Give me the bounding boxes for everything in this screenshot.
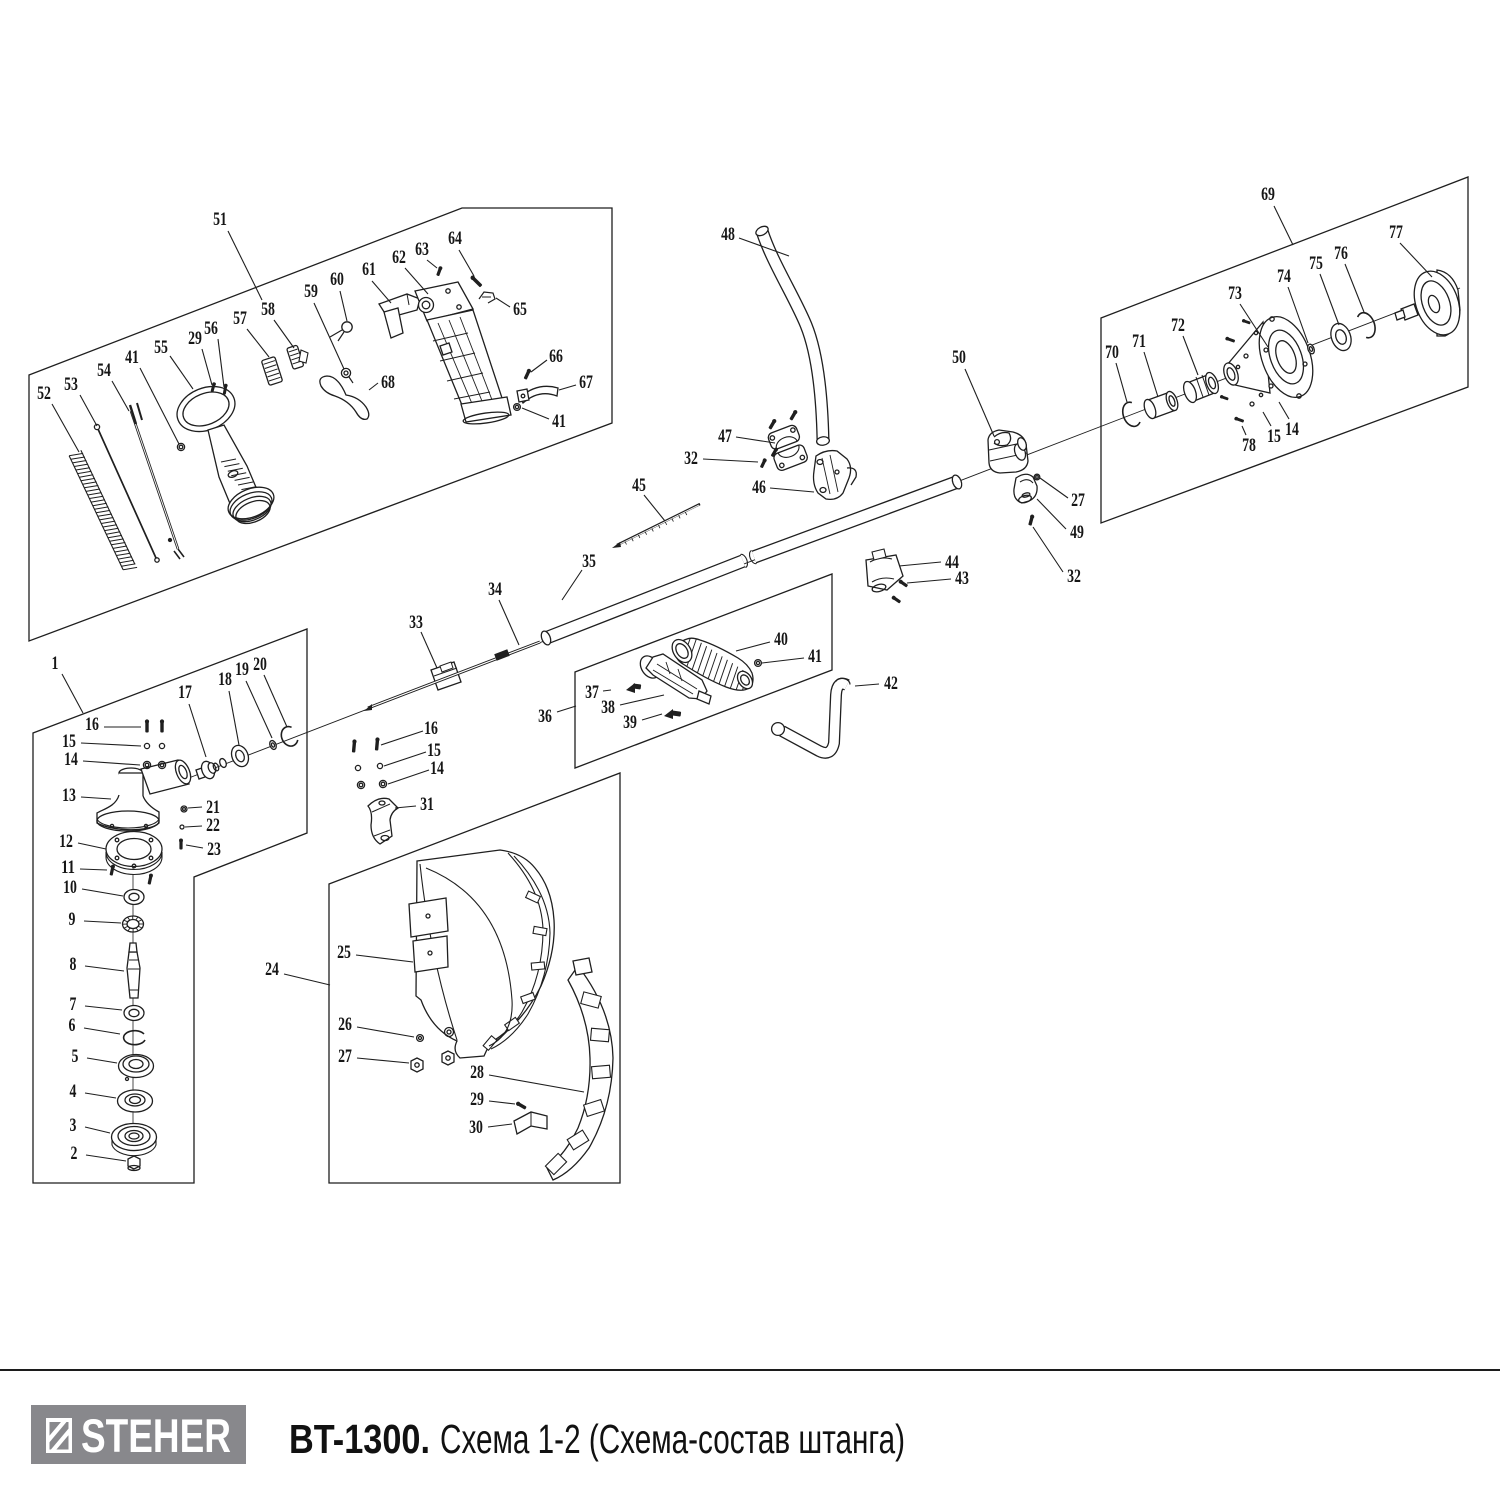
svg-text:70: 70 <box>1105 342 1119 363</box>
svg-text:10: 10 <box>63 877 77 898</box>
svg-text:35: 35 <box>582 551 596 572</box>
svg-text:65: 65 <box>513 299 527 320</box>
svg-text:72: 72 <box>1171 315 1185 336</box>
svg-text:8: 8 <box>70 954 77 975</box>
svg-text:71: 71 <box>1132 331 1146 352</box>
svg-text:49: 49 <box>1070 522 1084 543</box>
svg-text:63: 63 <box>415 239 429 260</box>
svg-text:54: 54 <box>97 360 111 381</box>
svg-text:50: 50 <box>952 347 966 368</box>
svg-text:22: 22 <box>206 815 220 836</box>
svg-text:73: 73 <box>1228 283 1242 304</box>
svg-text:30: 30 <box>469 1117 483 1138</box>
svg-text:5: 5 <box>72 1046 79 1067</box>
svg-text:59: 59 <box>304 281 318 302</box>
svg-text:61: 61 <box>362 259 376 280</box>
svg-text:74: 74 <box>1277 266 1291 287</box>
svg-text:29: 29 <box>470 1089 484 1110</box>
svg-text:64: 64 <box>448 228 462 249</box>
svg-text:52: 52 <box>37 383 51 404</box>
svg-text:41: 41 <box>808 646 822 667</box>
svg-text:33: 33 <box>409 612 423 633</box>
svg-text:43: 43 <box>955 568 969 589</box>
svg-text:77: 77 <box>1389 222 1403 243</box>
svg-text:38: 38 <box>601 697 615 718</box>
svg-text:STEHER: STEHER <box>81 1409 231 1462</box>
svg-text:17: 17 <box>178 682 192 703</box>
svg-text:26: 26 <box>338 1014 352 1035</box>
svg-text:47: 47 <box>718 426 732 447</box>
svg-text:3: 3 <box>70 1115 77 1136</box>
svg-text:4: 4 <box>70 1081 77 1102</box>
svg-text:28: 28 <box>470 1062 484 1083</box>
svg-text:34: 34 <box>488 579 502 600</box>
svg-text:16: 16 <box>85 714 99 735</box>
svg-text:27: 27 <box>1071 490 1085 511</box>
svg-text:12: 12 <box>59 831 73 852</box>
svg-text:53: 53 <box>64 374 78 395</box>
svg-text:14: 14 <box>64 749 78 770</box>
svg-text:14: 14 <box>430 758 444 779</box>
svg-text:40: 40 <box>774 629 788 650</box>
svg-text:60: 60 <box>330 269 344 290</box>
svg-text:37: 37 <box>585 682 599 703</box>
svg-text:69: 69 <box>1261 184 1275 205</box>
svg-text:29: 29 <box>188 328 202 349</box>
svg-text:75: 75 <box>1309 253 1323 274</box>
svg-text:15: 15 <box>1267 426 1281 447</box>
svg-text:11: 11 <box>61 857 75 878</box>
svg-text:66: 66 <box>549 346 563 367</box>
svg-text:32: 32 <box>684 448 698 469</box>
svg-text:24: 24 <box>265 959 279 980</box>
svg-text:76: 76 <box>1334 243 1348 264</box>
svg-text:31: 31 <box>420 794 434 815</box>
svg-text:58: 58 <box>261 299 275 320</box>
svg-text:Схема 1-2 (Схема-состав штанга: Схема 1-2 (Схема-состав штанга) <box>440 1416 905 1462</box>
svg-text:19: 19 <box>235 659 249 680</box>
svg-text:27: 27 <box>338 1046 352 1067</box>
svg-text:48: 48 <box>721 224 735 245</box>
svg-text:16: 16 <box>424 718 438 739</box>
svg-text:51: 51 <box>213 209 227 230</box>
svg-text:23: 23 <box>207 839 221 860</box>
svg-text:42: 42 <box>884 673 898 694</box>
svg-text:13: 13 <box>62 785 76 806</box>
svg-text:57: 57 <box>233 308 247 329</box>
svg-text:7: 7 <box>70 994 77 1015</box>
svg-text:62: 62 <box>392 247 406 268</box>
svg-text:67: 67 <box>579 372 593 393</box>
svg-text:45: 45 <box>632 475 646 496</box>
svg-text:9: 9 <box>69 909 76 930</box>
svg-text:55: 55 <box>154 337 168 358</box>
svg-text:18: 18 <box>218 669 232 690</box>
svg-text:39: 39 <box>623 712 637 733</box>
svg-text:14: 14 <box>1285 419 1299 440</box>
svg-text:6: 6 <box>69 1015 76 1036</box>
svg-text:36: 36 <box>538 706 552 727</box>
svg-text:46: 46 <box>752 477 766 498</box>
svg-text:2: 2 <box>71 1143 78 1164</box>
svg-text:68: 68 <box>381 372 395 393</box>
svg-text:41: 41 <box>552 411 566 432</box>
svg-text:BT-1300.: BT-1300. <box>289 1416 430 1462</box>
svg-text:56: 56 <box>204 318 218 339</box>
svg-text:41: 41 <box>125 347 139 368</box>
svg-text:20: 20 <box>253 654 267 675</box>
svg-text:32: 32 <box>1067 566 1081 587</box>
svg-text:1: 1 <box>52 653 59 674</box>
svg-text:78: 78 <box>1242 435 1256 456</box>
svg-text:25: 25 <box>337 942 351 963</box>
